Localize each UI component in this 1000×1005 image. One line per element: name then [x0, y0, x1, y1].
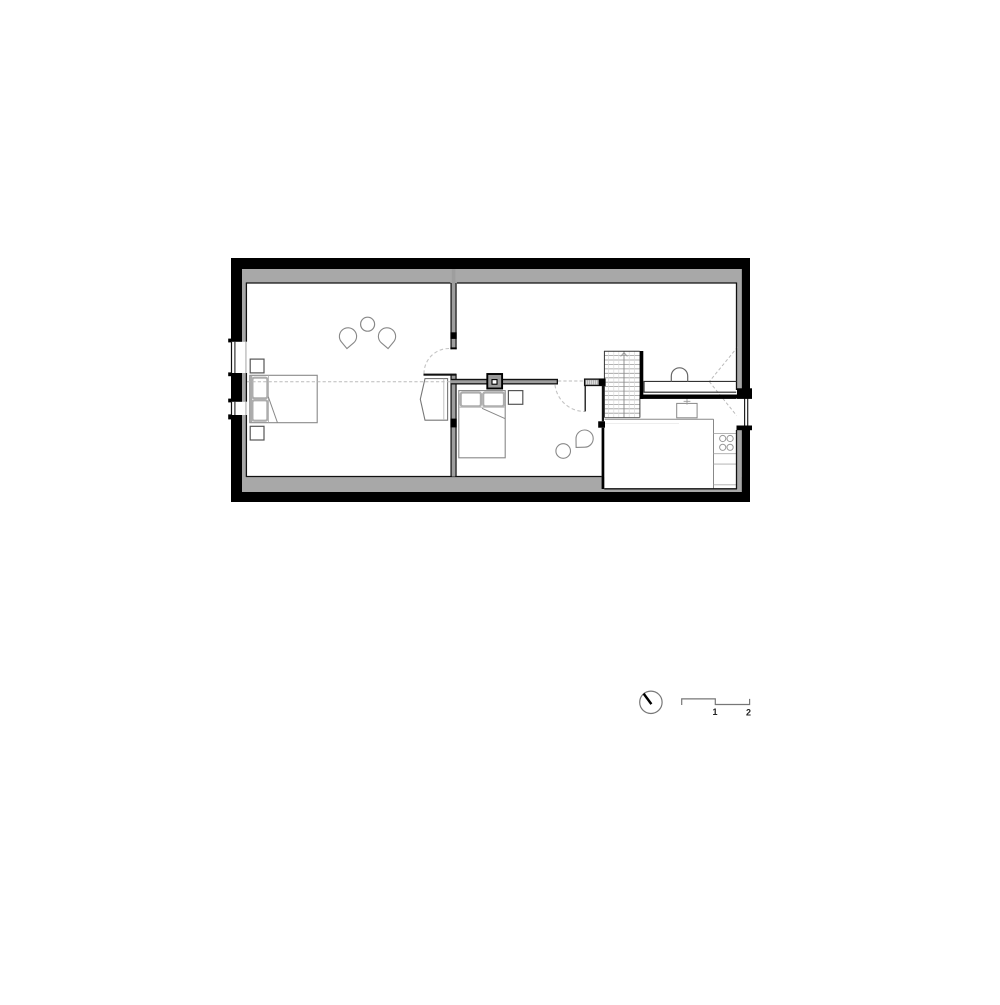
- svg-text:1: 1: [712, 707, 717, 717]
- svg-text:2: 2: [746, 708, 751, 718]
